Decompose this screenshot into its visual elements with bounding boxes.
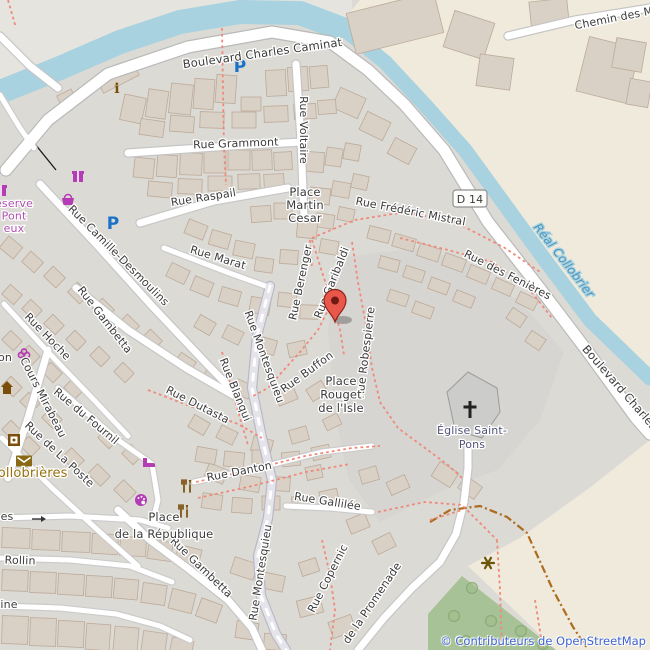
building xyxy=(2,570,29,592)
building xyxy=(145,89,169,120)
map-label: Place xyxy=(148,510,179,524)
building xyxy=(2,528,31,549)
map-label: D 14 xyxy=(457,193,484,206)
building xyxy=(254,257,274,273)
map-label: Église Saint- xyxy=(437,424,507,437)
building xyxy=(57,620,84,647)
building xyxy=(232,497,253,513)
map-label: Collobrières xyxy=(0,466,68,481)
building xyxy=(265,69,286,96)
building xyxy=(57,573,84,595)
building xyxy=(195,446,217,464)
building xyxy=(180,153,203,176)
building xyxy=(252,150,273,171)
map-label: Place xyxy=(325,374,356,388)
building xyxy=(204,151,226,173)
marker-dot xyxy=(331,297,339,305)
building xyxy=(2,616,29,645)
map-canvas[interactable]: PPiD 14Boulevard Charles CaminatBoulevar… xyxy=(0,0,650,650)
building xyxy=(168,83,193,115)
building xyxy=(62,532,91,553)
palette-icon xyxy=(135,494,147,506)
building xyxy=(280,249,299,264)
map-label: P xyxy=(107,214,120,234)
map-label: de la République xyxy=(115,527,214,541)
map-label: Pont xyxy=(2,210,27,223)
map-label: eux xyxy=(4,222,25,235)
museum-icon xyxy=(8,434,20,446)
gift-icon xyxy=(0,185,7,196)
gift-icon xyxy=(72,171,84,182)
building xyxy=(325,147,343,167)
building xyxy=(343,143,362,162)
map-label: on xyxy=(0,351,12,364)
building xyxy=(612,38,647,73)
tree-icon xyxy=(486,616,497,627)
map-label: es xyxy=(1,510,14,523)
building xyxy=(215,74,237,103)
map-label: i xyxy=(114,81,119,97)
building xyxy=(264,106,289,123)
building xyxy=(331,181,351,199)
building xyxy=(30,572,57,594)
building xyxy=(193,78,215,109)
building xyxy=(351,173,370,190)
building xyxy=(113,578,139,600)
building xyxy=(250,205,271,222)
building xyxy=(141,630,168,650)
map-label: eserve xyxy=(0,197,33,210)
map-label: Cesar xyxy=(288,211,322,225)
building xyxy=(169,115,194,133)
map-label: Pons xyxy=(459,438,485,451)
building xyxy=(32,530,61,551)
building xyxy=(200,112,225,129)
building xyxy=(139,118,165,137)
tree-icon xyxy=(449,611,460,622)
map-label: Rouget xyxy=(320,388,362,402)
parking-icon: P xyxy=(107,214,120,234)
building xyxy=(85,575,112,597)
building xyxy=(85,623,111,650)
building xyxy=(141,582,168,605)
building xyxy=(30,618,57,647)
building xyxy=(156,154,177,177)
map-label: Rollin xyxy=(4,553,35,567)
building xyxy=(238,174,261,190)
map-label: ine xyxy=(0,598,17,611)
map-label: de l'Isle xyxy=(318,401,363,415)
road-ref-badge: D 14 xyxy=(453,190,487,207)
map-label: Martin xyxy=(286,198,324,212)
building xyxy=(232,112,256,128)
building xyxy=(337,206,355,222)
map-label: Rue Voltaire xyxy=(297,96,310,164)
building xyxy=(626,78,650,107)
building xyxy=(113,626,139,650)
building xyxy=(476,54,514,90)
osm-attribution[interactable]: © Contributeurs de OpenStreetMap xyxy=(440,634,646,648)
map-viewport[interactable]: PPiD 14Boulevard Charles CaminatBoulevar… xyxy=(0,0,650,650)
building xyxy=(228,150,250,170)
tree-icon xyxy=(467,583,478,594)
building xyxy=(274,152,293,171)
building xyxy=(133,157,155,179)
map-label: Place xyxy=(289,185,320,199)
info-icon: i xyxy=(114,81,119,97)
building xyxy=(241,97,261,111)
post-icon xyxy=(16,456,32,467)
building xyxy=(309,65,329,88)
building xyxy=(318,99,337,114)
building xyxy=(147,181,172,198)
